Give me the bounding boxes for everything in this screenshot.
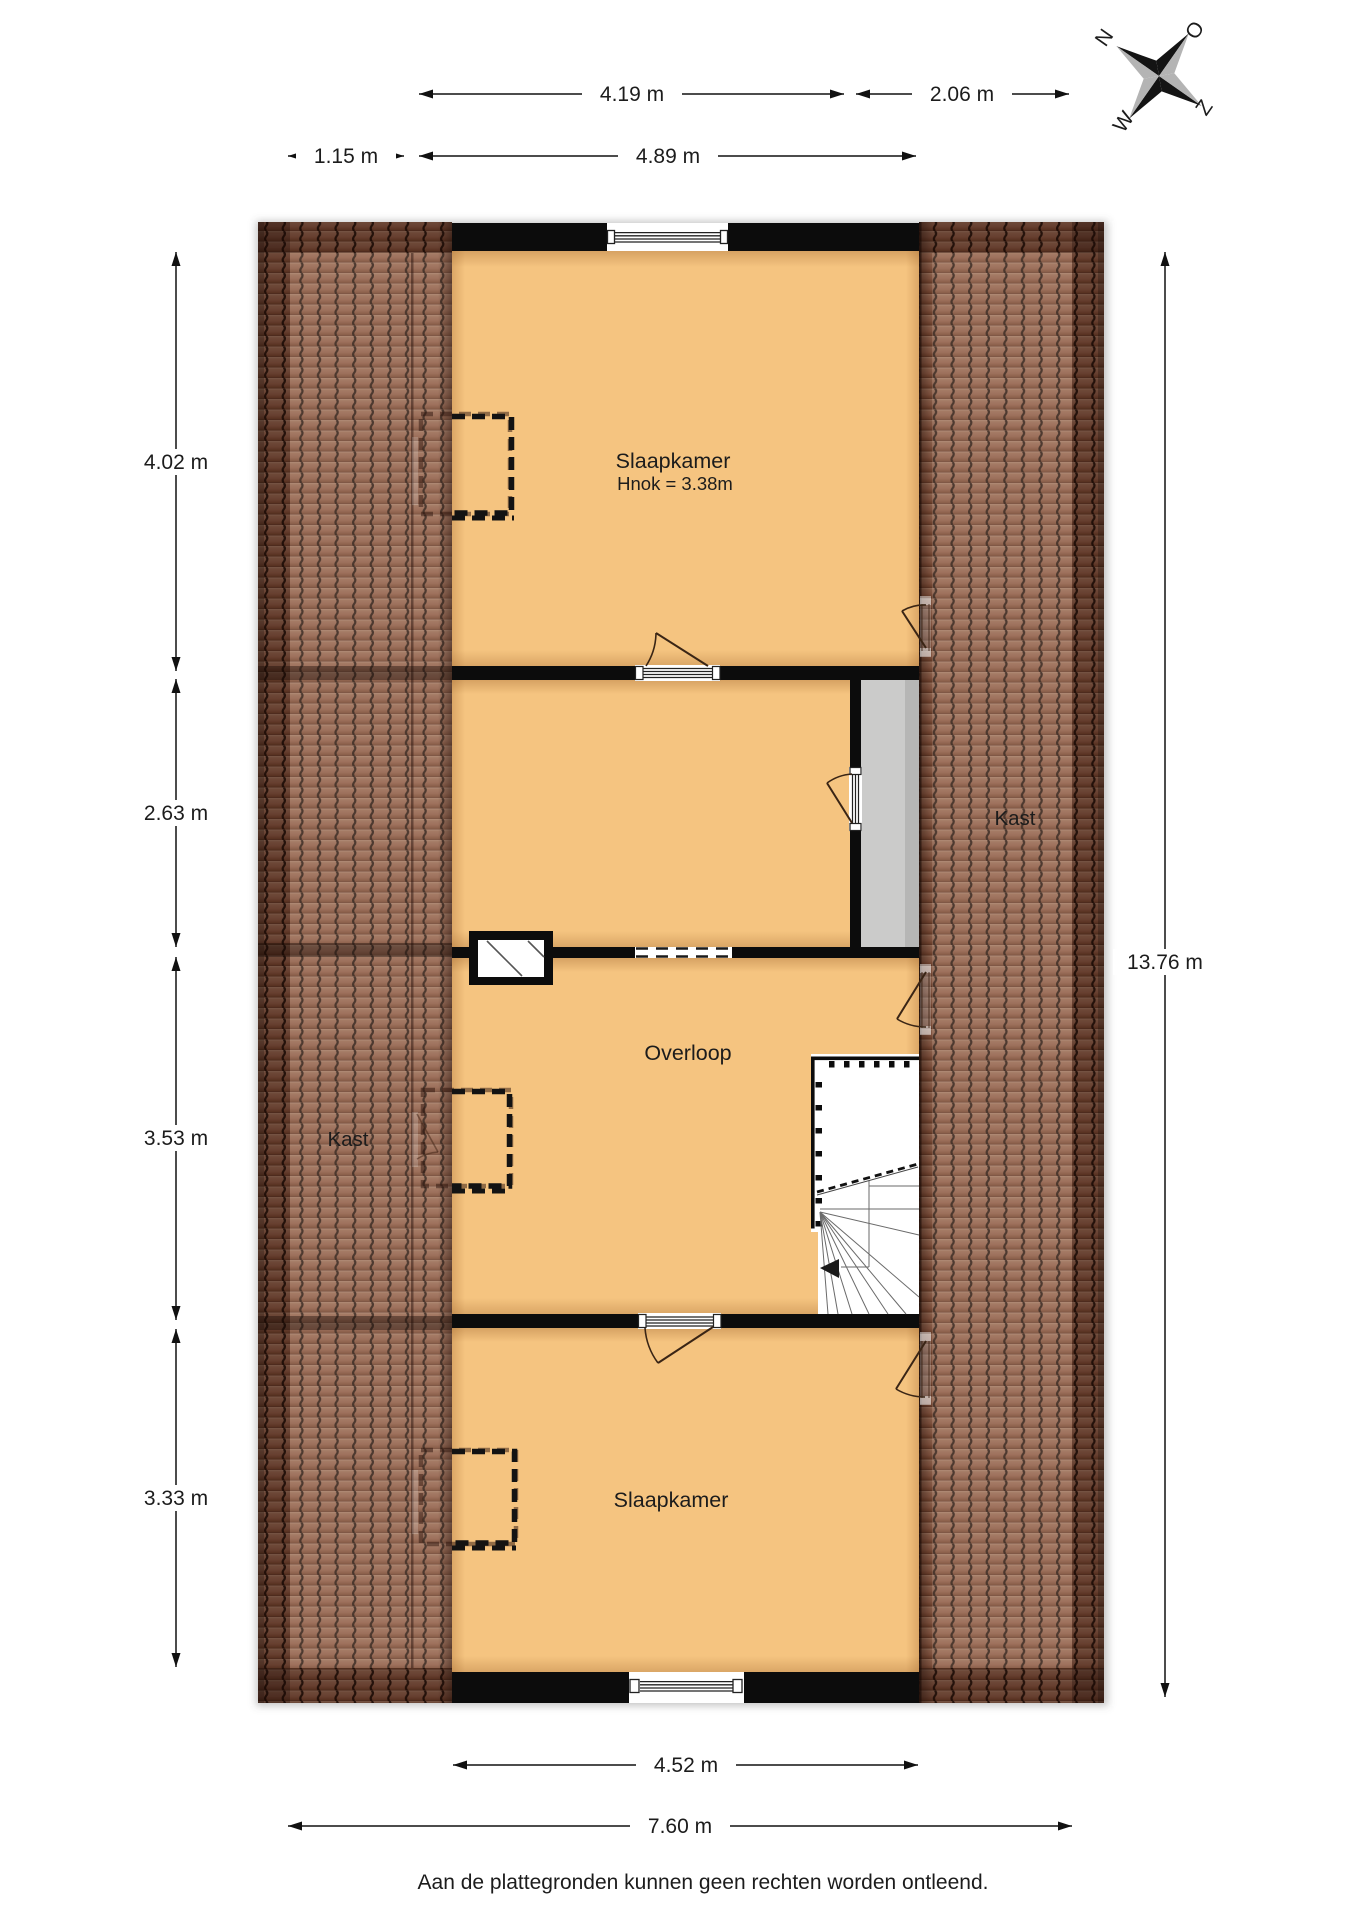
svg-text:4.89 m: 4.89 m	[636, 145, 700, 168]
svg-text:Kast: Kast	[327, 1128, 368, 1151]
svg-text:1.15 m: 1.15 m	[314, 145, 378, 168]
svg-text:7.60 m: 7.60 m	[648, 1815, 712, 1838]
svg-text:Slaapkamer: Slaapkamer	[614, 1488, 729, 1512]
svg-text:4.52 m: 4.52 m	[654, 1754, 718, 1777]
svg-text:13.76 m: 13.76 m	[1127, 951, 1203, 974]
svg-text:Hnok = 3.38m: Hnok = 3.38m	[617, 473, 733, 494]
svg-text:2.63 m: 2.63 m	[144, 802, 208, 825]
svg-text:3.53 m: 3.53 m	[144, 1127, 208, 1150]
svg-text:Overloop: Overloop	[644, 1041, 731, 1065]
svg-text:4.19 m: 4.19 m	[600, 83, 664, 106]
svg-text:Kast: Kast	[994, 807, 1035, 830]
svg-text:Slaapkamer: Slaapkamer	[616, 449, 731, 473]
svg-text:4.02 m: 4.02 m	[144, 451, 208, 474]
svg-text:2.06 m: 2.06 m	[930, 83, 994, 106]
svg-text:Aan de plattegronden kunnen ge: Aan de plattegronden kunnen geen rechten…	[418, 1871, 989, 1894]
svg-text:3.33 m: 3.33 m	[144, 1487, 208, 1510]
